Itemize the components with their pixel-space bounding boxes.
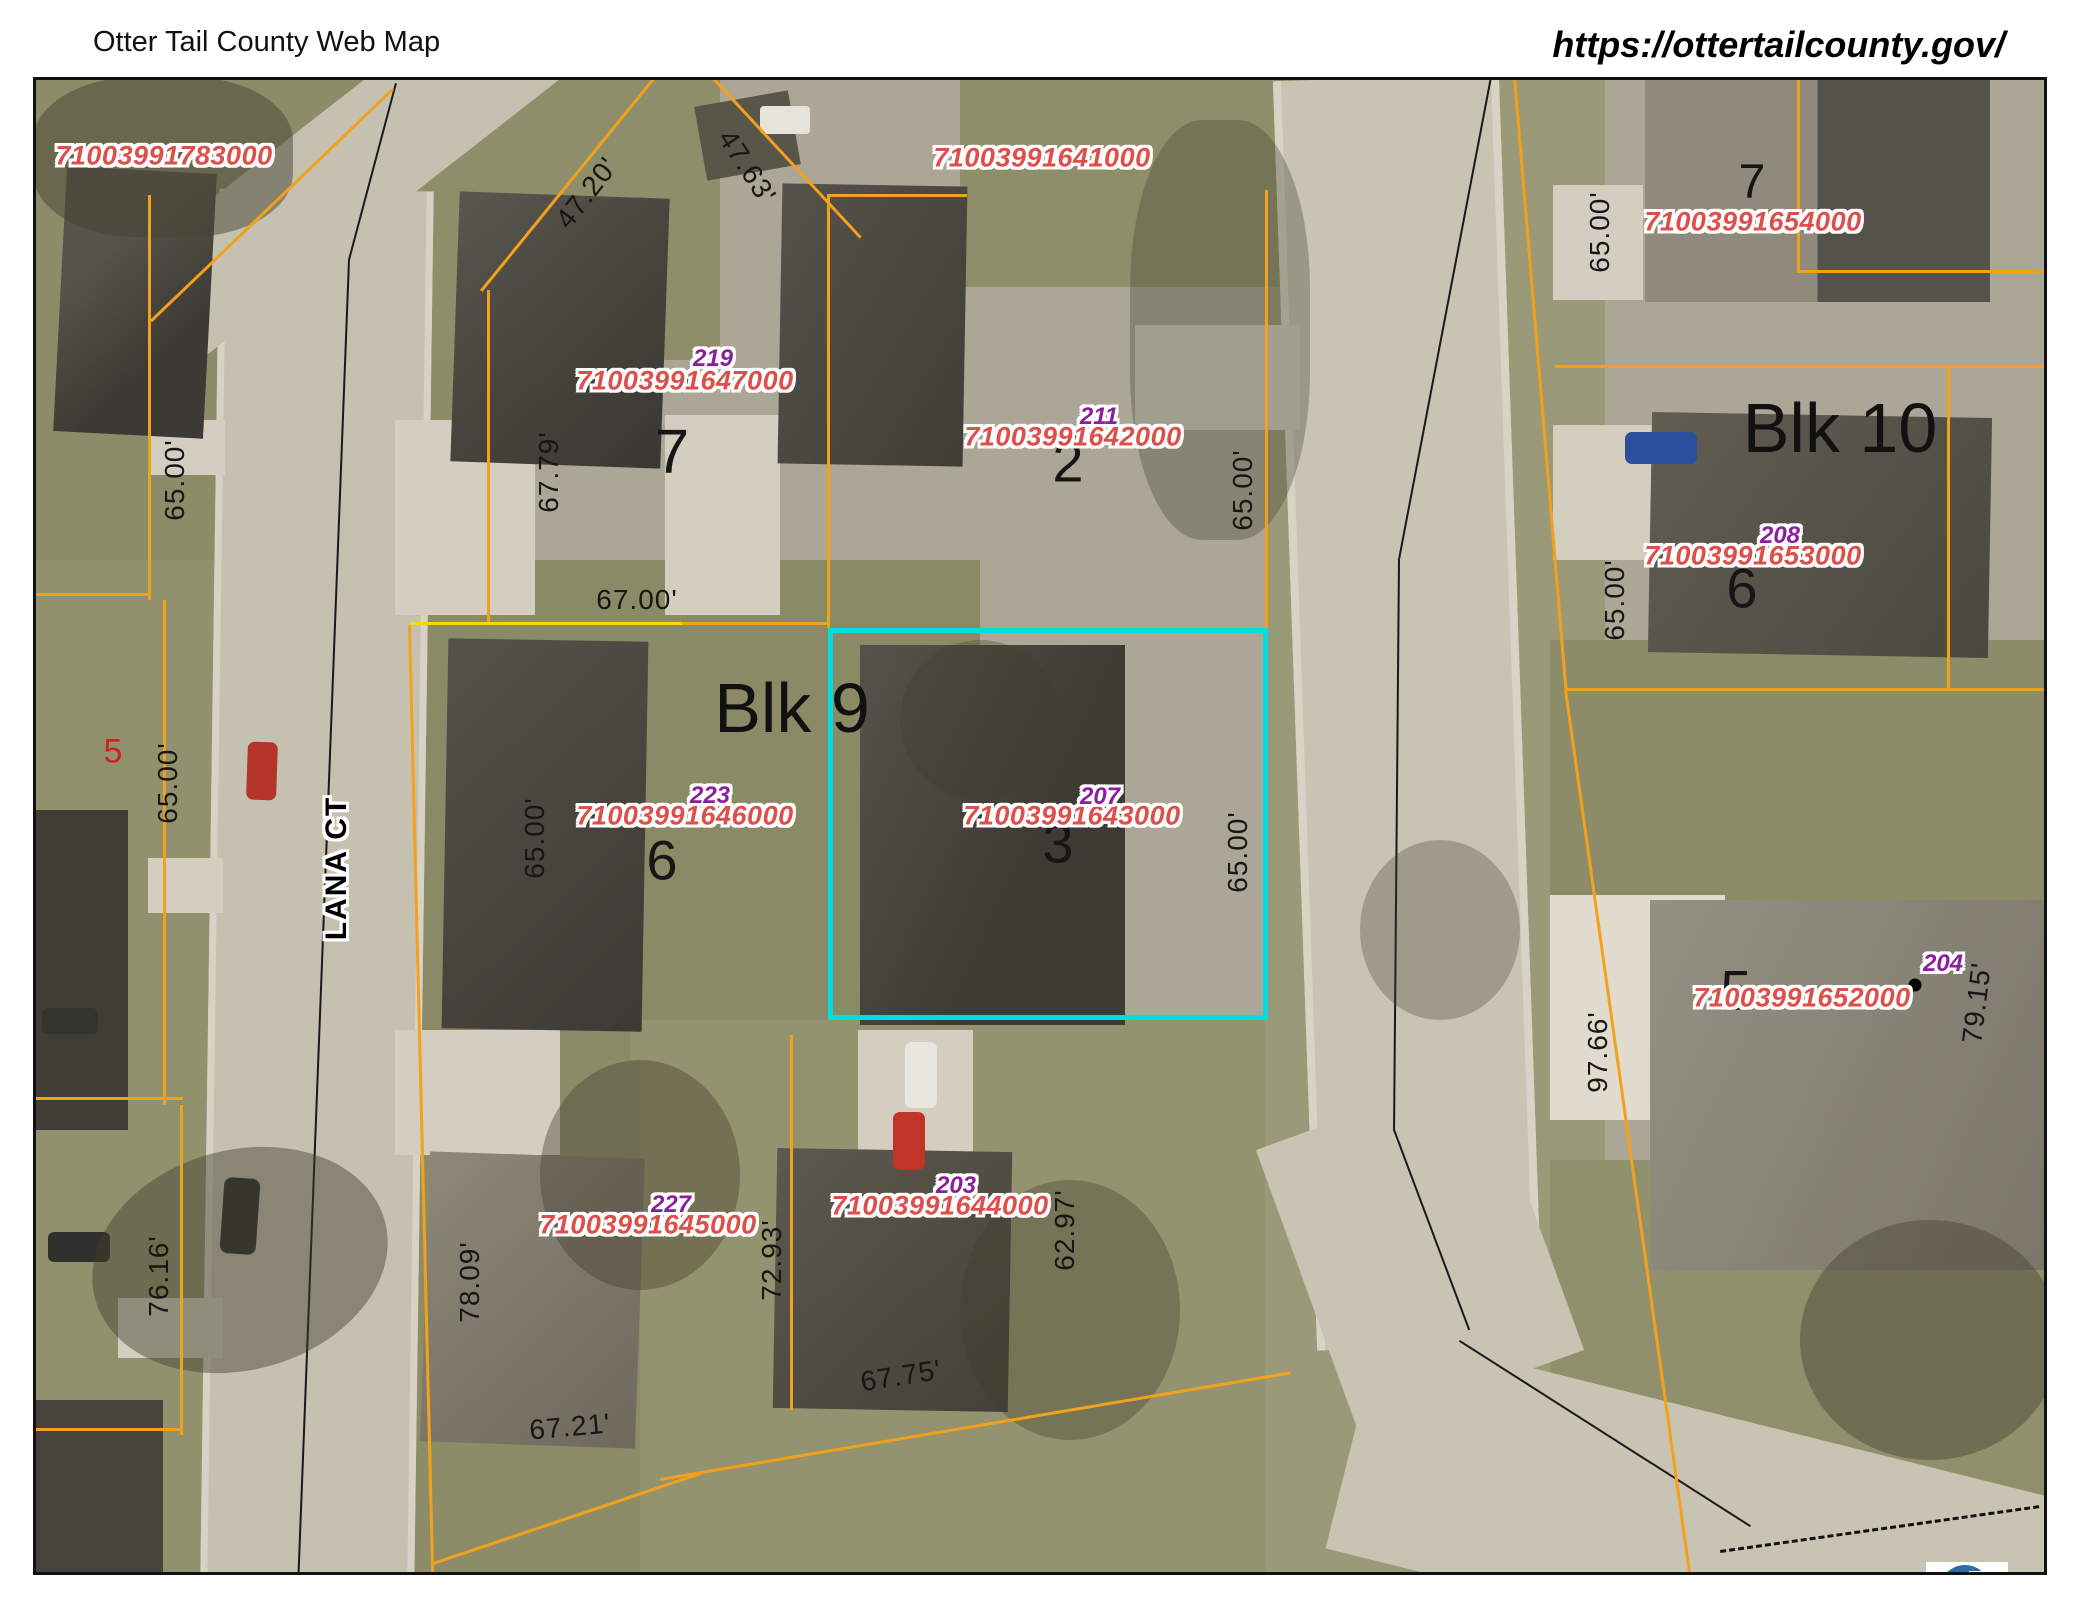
dimension-label: 47.20' [549,151,624,235]
dimension-label: 65.00' [1227,449,1259,530]
parcel-id-label: 71003991645000 [539,1210,756,1241]
dimension-label: 78.09' [454,1241,486,1322]
parcel-id-label: 71003991783000 [55,141,272,172]
dimension-label: 65.00' [1584,191,1616,272]
parcel-id-label: 71003991642000 [964,422,1181,453]
lot-number: 6 [646,828,677,893]
dimension-label: 67.75' [858,1354,943,1398]
dimension-label: 65.00' [519,797,551,878]
house-number-label: 219 [693,345,733,373]
house-number-label: 207 [1080,783,1120,811]
house-number-label: 227 [651,1191,691,1219]
parcel-id-label: 71003991643000 [963,801,1180,832]
dimension-label: 67.21' [528,1408,612,1447]
page: Otter Tail County Web Map https://ottert… [0,0,2080,1607]
dimension-label: 76.16' [143,1235,175,1316]
dimension-label: 65.00' [152,742,184,823]
dimension-label: 65.00' [1222,811,1254,892]
county-logo-icon [1939,1565,1995,1575]
dimension-label: 72.93' [756,1219,788,1300]
street-label: LANA CT [320,796,354,941]
page-title: Otter Tail County Web Map [93,26,440,59]
parcel-id-label: 71003991654000 [1644,207,1861,238]
parcel-id-label: 71003991652000 [1693,983,1910,1014]
map-labels: LANA CT 72766355Blk 9Blk 1047.20'47.63'6… [33,77,2047,1575]
dimension-label: 67.79' [533,431,565,512]
house-number-label: 204 [1923,950,1963,978]
house-number-label: 211 [1080,403,1118,431]
parcel-id-label: 71003991641000 [933,143,1150,174]
lot-number: 7 [655,417,689,488]
house-number-label: 223 [690,782,730,810]
dimension-label: 65.00' [159,439,191,520]
block-label: Blk 9 [714,668,870,748]
map-canvas[interactable]: LANA CT 72766355Blk 9Blk 1047.20'47.63'6… [33,77,2047,1575]
parcel-id-label: 71003991647000 [576,366,793,397]
house-number-label: 208 [1760,522,1800,550]
lot-number: 5 [104,733,123,772]
dimension-label: 65.00' [1599,559,1631,640]
parcel-id-label: 71003991653000 [1644,541,1861,572]
header-url: https://ottertailcounty.gov/ [1430,24,2005,66]
parcel-id-label: 71003991646000 [576,801,793,832]
block-label: Blk 10 [1743,388,1938,468]
dimension-label: 47.63' [711,124,782,210]
lot-number: 7 [1739,155,1766,210]
house-number-label: 203 [936,1172,976,1200]
county-logo: OTTER TAIL COUNTY · MINNESOTA [1926,1562,2008,1575]
dimension-label: 67.00' [596,584,677,616]
dimension-label: 62.97' [1049,1189,1081,1270]
dimension-label: 97.66' [1582,1011,1614,1092]
